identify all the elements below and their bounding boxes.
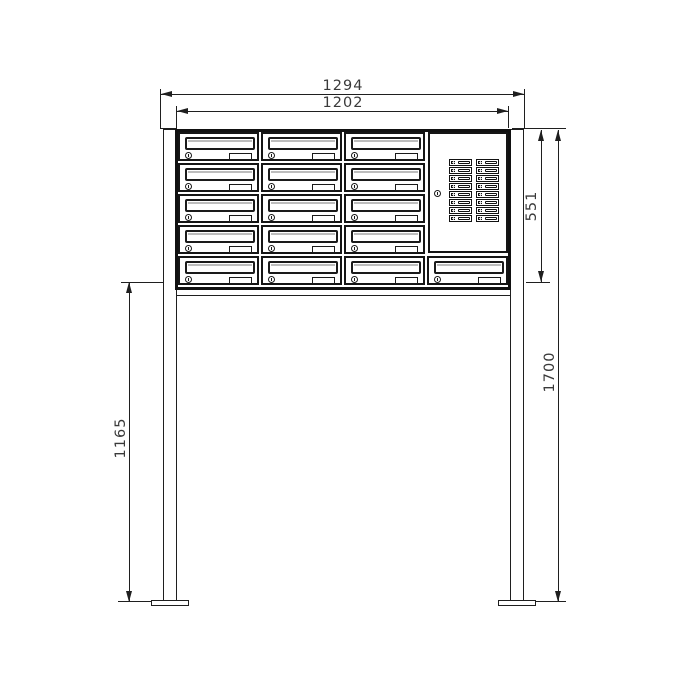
dimension-label-cabinet-height: 551 <box>524 191 540 222</box>
dim-arrow-icon <box>513 91 524 97</box>
mail-slot-flap <box>268 199 338 212</box>
technical-drawing-canvas: 1294 1202 551 1700 1165 <box>0 0 700 700</box>
mailbox-door <box>261 163 342 192</box>
bell-push-icon <box>451 169 455 173</box>
mail-slot-flap <box>268 261 338 274</box>
bell-push-icon <box>478 185 482 189</box>
mail-slot-flap <box>268 137 338 150</box>
bell-name-strip <box>485 193 498 197</box>
bell-push-icon <box>478 161 482 165</box>
mail-slot-flap <box>185 199 255 212</box>
mail-slot-flap <box>351 168 421 181</box>
bell-push-icon <box>478 209 482 213</box>
mailbox-door <box>178 194 259 223</box>
extension-tick-top-left <box>160 128 177 129</box>
cylinder-lock-icon <box>351 245 358 252</box>
mailbox-door <box>178 132 259 161</box>
bell-button <box>476 191 499 198</box>
dim-arrow-icon <box>555 130 561 141</box>
extension-tick-ground-left <box>118 601 151 602</box>
mailbox-door <box>344 194 425 223</box>
mail-slot-flap <box>351 261 421 274</box>
name-plate <box>229 277 252 284</box>
extension-tick-cabinet-bottom-right <box>526 282 550 283</box>
bell-name-strip <box>458 201 471 205</box>
bell-button <box>476 183 499 190</box>
mailbox-grid <box>178 132 508 287</box>
mail-slot-flap <box>434 261 504 274</box>
name-plate <box>312 277 335 284</box>
dimension-line-overall-height <box>558 130 559 602</box>
mail-slot-flap <box>185 230 255 243</box>
bell-button <box>449 207 472 214</box>
mailbox-door <box>344 163 425 192</box>
mailbox-door <box>261 132 342 161</box>
dimension-line-cabinet-width <box>177 111 508 112</box>
bell-push-icon <box>478 177 482 181</box>
cylinder-lock-icon <box>185 276 192 283</box>
bell-name-strip <box>458 161 471 165</box>
bell-push-icon <box>451 177 455 181</box>
cylinder-lock-icon <box>351 152 358 159</box>
bell-push-icon <box>478 193 482 197</box>
cylinder-lock-icon <box>185 152 192 159</box>
mailbox-door <box>178 256 259 285</box>
cylinder-lock-icon <box>185 245 192 252</box>
bell-name-strip <box>485 169 498 173</box>
mail-slot-flap <box>351 230 421 243</box>
bell-name-strip <box>458 185 471 189</box>
cylinder-lock-icon <box>351 183 358 190</box>
extension-line-1294-right <box>524 89 525 128</box>
mail-slot-flap <box>268 230 338 243</box>
cylinder-lock-icon <box>351 276 358 283</box>
name-plate <box>478 277 501 284</box>
bell-button <box>449 191 472 198</box>
bell-name-strip <box>485 209 498 213</box>
cylinder-lock-icon <box>268 276 275 283</box>
dim-arrow-icon <box>126 282 132 293</box>
cylinder-lock-icon <box>434 190 441 197</box>
bell-button <box>449 183 472 190</box>
bell-button <box>449 159 472 166</box>
bell-button <box>476 167 499 174</box>
bell-name-strip <box>458 217 471 221</box>
bell-name-strip <box>485 161 498 165</box>
mail-slot-flap <box>351 137 421 150</box>
bell-button <box>476 159 499 166</box>
mail-slot-flap <box>185 168 255 181</box>
cylinder-lock-icon <box>185 183 192 190</box>
mailbox-cabinet <box>175 129 511 290</box>
bell-button <box>449 167 472 174</box>
bell-button <box>476 199 499 206</box>
mailbox-door <box>261 256 342 285</box>
bell-name-strip <box>458 169 471 173</box>
bell-push-icon <box>451 209 455 213</box>
bell-push-icon <box>478 169 482 173</box>
dim-arrow-icon <box>497 108 508 114</box>
dimension-label-stand-height: 1165 <box>113 418 129 459</box>
cylinder-lock-icon <box>268 214 275 221</box>
name-plate <box>229 184 252 191</box>
name-plate <box>395 153 418 160</box>
bell-name-strip <box>485 185 498 189</box>
bell-name-strip <box>458 209 471 213</box>
bell-button <box>449 199 472 206</box>
dimension-label-overall-height: 1700 <box>542 352 558 393</box>
bell-push-icon <box>451 201 455 205</box>
stand-post-right <box>510 129 524 602</box>
cylinder-lock-icon <box>268 245 275 252</box>
bell-button <box>476 175 499 182</box>
name-plate <box>395 184 418 191</box>
bell-name-strip <box>485 217 498 221</box>
bell-button <box>449 215 472 222</box>
dim-arrow-icon <box>161 91 172 97</box>
bell-name-strip <box>458 177 471 181</box>
bell-push-icon <box>478 217 482 221</box>
name-plate <box>312 215 335 222</box>
cylinder-lock-icon <box>268 152 275 159</box>
mailbox-door <box>261 225 342 254</box>
base-plate-left <box>151 600 189 606</box>
bell-push-icon <box>451 161 455 165</box>
mail-slot-flap <box>351 199 421 212</box>
bell-name-strip <box>458 193 471 197</box>
bell-push-icon <box>478 201 482 205</box>
cylinder-lock-icon <box>268 183 275 190</box>
cylinder-lock-icon <box>434 276 441 283</box>
cylinder-lock-icon <box>351 214 358 221</box>
dim-arrow-icon <box>538 130 544 141</box>
dimension-line-stand-height <box>129 282 130 602</box>
mailbox-door <box>427 256 508 285</box>
mail-slot-flap <box>185 137 255 150</box>
bell-button <box>476 207 499 214</box>
intercom-panel <box>428 132 508 253</box>
name-plate <box>395 215 418 222</box>
mailbox-door <box>261 194 342 223</box>
name-plate <box>229 246 252 253</box>
mailbox-door <box>178 225 259 254</box>
bell-push-icon <box>451 185 455 189</box>
mailbox-door <box>344 132 425 161</box>
mail-slot-flap <box>268 168 338 181</box>
extension-tick-ground-right <box>536 601 566 602</box>
dimension-line-cabinet-height <box>541 130 542 282</box>
name-plate <box>312 184 335 191</box>
name-plate <box>395 246 418 253</box>
bell-name-strip <box>485 177 498 181</box>
mailbox-door <box>344 256 425 285</box>
bell-push-icon <box>451 217 455 221</box>
dim-arrow-icon <box>538 271 544 282</box>
bell-button <box>476 215 499 222</box>
dimension-label-cabinet-width: 1202 <box>321 95 366 111</box>
bell-name-strip <box>485 201 498 205</box>
bell-button <box>449 175 472 182</box>
name-plate <box>229 153 252 160</box>
name-plate <box>229 215 252 222</box>
bell-push-icon <box>451 193 455 197</box>
mailbox-door <box>344 225 425 254</box>
base-plate-right <box>498 600 536 606</box>
name-plate <box>312 153 335 160</box>
dim-arrow-icon <box>177 108 188 114</box>
dimension-label-overall-width: 1294 <box>321 78 366 94</box>
stand-crossbar <box>177 295 510 296</box>
name-plate <box>395 277 418 284</box>
mailbox-door <box>178 163 259 192</box>
name-plate <box>312 246 335 253</box>
mail-slot-flap <box>185 261 255 274</box>
cylinder-lock-icon <box>185 214 192 221</box>
extension-line-1202-right <box>508 106 509 128</box>
